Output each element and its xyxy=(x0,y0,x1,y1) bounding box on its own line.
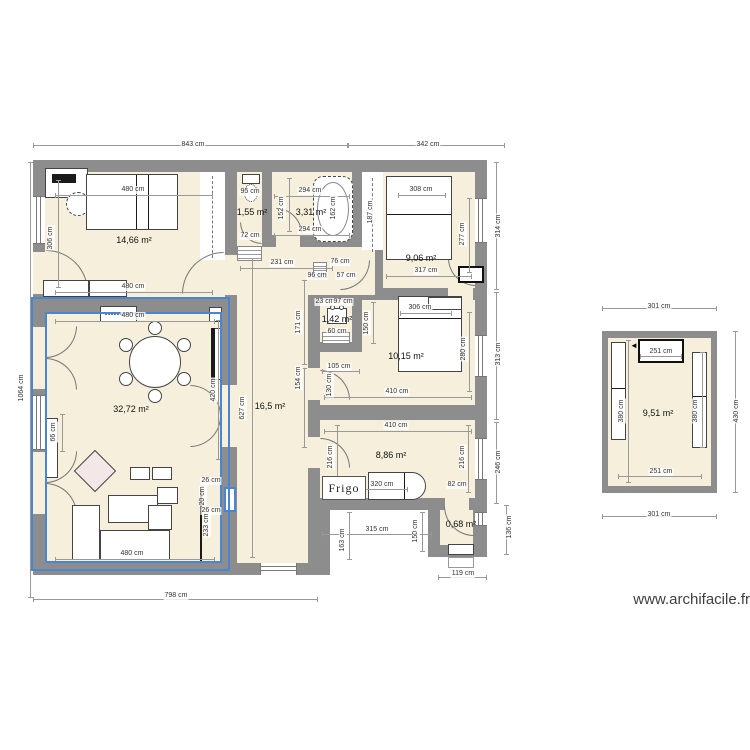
dimension-label: 314 cm xyxy=(495,214,503,239)
dimension-label: 150 cm xyxy=(412,519,420,544)
dimension-label: 301 cm xyxy=(647,303,672,311)
door-opening[interactable] xyxy=(308,437,320,468)
dimension-line xyxy=(287,178,292,232)
doormat-icon[interactable] xyxy=(448,544,474,555)
dimension-label: 96 cm xyxy=(306,272,327,280)
dimension-label: 480 cm xyxy=(121,283,146,291)
dimension-label: 306 cm xyxy=(47,226,55,251)
window-icon[interactable] xyxy=(260,563,297,575)
room-area-label: 8,86 m² xyxy=(376,450,407,460)
dimension-label: 130 cm xyxy=(326,373,334,398)
door-opening[interactable] xyxy=(225,255,237,295)
dimension-label: 410 cm xyxy=(384,422,409,430)
dimension-label: 313 cm xyxy=(495,342,503,367)
room-corridor[interactable] xyxy=(237,295,308,563)
dimension-label: 1064 cm xyxy=(18,374,26,403)
shelf-icon[interactable] xyxy=(611,342,626,440)
room-area-label: 16,5 m² xyxy=(255,401,286,411)
room-area-label: 9,51 m² xyxy=(643,408,674,418)
dimension-label: 150 cm xyxy=(363,311,371,336)
dimension-label: 76 cm xyxy=(329,258,350,266)
dimension-label: 315 cm xyxy=(365,526,390,534)
dimension-label: 294 cm xyxy=(298,187,323,195)
dimension-label: 294 cm xyxy=(298,226,323,234)
dimension-label: 20 cm xyxy=(199,485,207,506)
dimension-label: 246 cm xyxy=(495,450,503,475)
dimension-label: 162 cm xyxy=(330,196,338,221)
dimension-label: 308 cm xyxy=(409,186,434,194)
dimension-label: 277 cm xyxy=(459,222,467,247)
dimension-label: 430 cm xyxy=(733,399,741,424)
dimension-label: 480 cm xyxy=(121,186,146,194)
dimension-label: 57 cm xyxy=(335,272,356,280)
shelf-icon[interactable] xyxy=(428,297,462,310)
dimension-label: 152 cm xyxy=(278,196,286,221)
dimension-label: 105 cm xyxy=(327,363,352,371)
dimension-label: 216 cm xyxy=(327,445,335,470)
dimension-label: 60 cm xyxy=(326,328,347,336)
selection-outline-inner[interactable] xyxy=(45,312,222,563)
dimension-label: 798 cm xyxy=(164,592,189,600)
dimension-label: 154 cm xyxy=(295,366,303,391)
shelf-line xyxy=(612,388,625,389)
bed-line xyxy=(148,175,149,229)
dimension-label: 306 cm xyxy=(408,304,433,312)
dimension-label: 280 cm xyxy=(460,337,468,362)
room-area-label: 0,68 m² xyxy=(446,519,477,529)
dimension-label: 187 cm xyxy=(367,200,375,225)
toilet-tank-icon[interactable] xyxy=(242,174,260,184)
dimension-label: 136 cm xyxy=(506,515,514,540)
bed-line xyxy=(136,175,137,229)
counter-line xyxy=(404,473,405,499)
dimension-label: 26 cm xyxy=(200,477,221,485)
room-area-label: 32,72 m² xyxy=(113,404,149,414)
dimension-label: 163 cm xyxy=(339,528,347,553)
room-area-label: 9,06 m² xyxy=(406,253,437,263)
dimension-label: 72 cm xyxy=(239,232,260,240)
dimension-label: 66 cm xyxy=(50,421,58,442)
dimension-line xyxy=(371,302,376,344)
dimension-label: 380 cm xyxy=(692,399,700,424)
dimension-label: 95 cm xyxy=(239,188,260,196)
dimension-label: 627 cm xyxy=(239,396,247,421)
door-opening[interactable] xyxy=(308,368,320,400)
dimension-label: 97 cm xyxy=(332,298,353,306)
window-icon[interactable] xyxy=(475,438,487,480)
dimension-label: 843 cm xyxy=(181,141,206,149)
dimension-line xyxy=(467,198,472,273)
arrow-icon: ◄ xyxy=(630,341,638,350)
window-icon[interactable] xyxy=(475,198,487,243)
dimension-label: 251 cm xyxy=(649,348,674,356)
step-icon[interactable] xyxy=(448,557,474,568)
window-icon[interactable] xyxy=(475,335,487,377)
dimension-label: 320 cm xyxy=(370,481,395,489)
dimension-label: 480 cm xyxy=(121,312,146,320)
dimension-line xyxy=(347,512,352,560)
dimension-label: 251 cm xyxy=(649,468,674,476)
dimension-label: 171 cm xyxy=(295,310,303,335)
dimension-label: 380 cm xyxy=(618,399,626,424)
bed-line xyxy=(387,214,451,215)
dimension-label: 342 cm xyxy=(416,141,441,149)
dimension-label: 420 cm xyxy=(210,378,218,403)
fridge[interactable]: Frigo xyxy=(322,476,366,500)
dimension-label: 301 cm xyxy=(647,511,672,519)
dimension-line xyxy=(626,340,631,483)
window-icon[interactable] xyxy=(33,196,45,244)
dimension-label: 231 cm xyxy=(270,259,295,267)
wardrobe-icon[interactable] xyxy=(212,176,213,258)
dimension-line xyxy=(56,180,61,288)
dimension-label: 82 cm xyxy=(446,481,467,489)
dimension-label: 119 cm xyxy=(451,570,475,578)
floor-plan-canvas[interactable]: Frigo ◄ xyxy=(0,0,750,750)
window-icon[interactable] xyxy=(475,512,487,526)
room-area-label: 1,42 m² xyxy=(322,314,353,324)
bed-line xyxy=(399,318,461,319)
dimension-label: 480 cm xyxy=(120,550,145,558)
dimension-label: 317 cm xyxy=(414,267,439,275)
dimension-label: 410 cm xyxy=(385,388,410,396)
dimension-label: 233 cm xyxy=(203,513,211,538)
dimension-label: 216 cm xyxy=(459,445,467,470)
bed-icon[interactable] xyxy=(86,174,178,230)
room-area-label: 10,15 m² xyxy=(388,351,424,361)
room-area-label: 3,31 m² xyxy=(296,207,327,217)
dimension-line xyxy=(420,512,425,552)
room-area-label: 1,55 m² xyxy=(237,207,268,217)
room-area-label: 14,66 m² xyxy=(116,235,152,245)
watermark: www.archifacile.fr xyxy=(615,591,750,608)
dimension-line xyxy=(700,352,705,448)
